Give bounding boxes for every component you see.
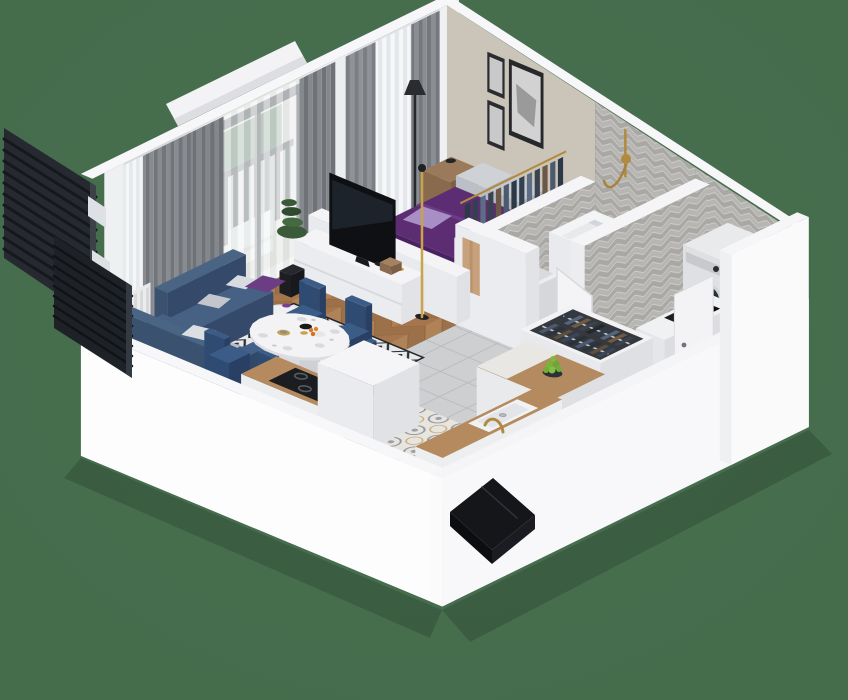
gold-lamp-head [418, 164, 426, 172]
coffee-table-vase [282, 304, 291, 308]
bedroom-sheer-folds-fold [407, 25, 411, 215]
bedroom-sheer-folds-fold [395, 31, 399, 221]
balcony-sheer-folds-fold [257, 97, 264, 288]
sink-drain [500, 414, 507, 417]
apple-5 [556, 366, 562, 372]
orange-2 [314, 327, 318, 331]
bedroom-sheer-folds-fold [399, 29, 403, 219]
entry-door-handle [682, 343, 687, 348]
washer-knob [713, 266, 719, 272]
exterior-shutter-lower-edge [126, 282, 132, 378]
orange-3 [311, 332, 315, 336]
entry-corner-wall-front-face [720, 250, 732, 465]
bedroom-sheer-folds-fold [386, 35, 390, 225]
floorplan-stage [0, 0, 848, 700]
apple-4 [543, 367, 549, 373]
balcony-sheer-folds-fold [283, 84, 289, 275]
apple-6 [550, 356, 556, 362]
art-small-top-canvas [490, 57, 503, 94]
balcony-sheer-folds-fold [264, 94, 271, 285]
bedroom-sheer-folds-fold [403, 27, 407, 217]
se-exterior-wall-front-face [431, 474, 443, 607]
balcony-sheer-folds-fold [251, 100, 258, 291]
apple-3 [549, 367, 556, 374]
art-small-bottom-canvas [490, 105, 503, 146]
shower-head [621, 154, 631, 164]
entry-corner-wall-right-face [731, 217, 808, 465]
orange-1 [309, 328, 313, 332]
apartment-3d-floorplan-render [0, 0, 848, 700]
balcony-sheer-folds-fold [277, 87, 284, 278]
bedroom-living-partition-right-face [457, 270, 471, 325]
balcony-sheer-folds-fold [270, 91, 277, 282]
bedroom-sheer-folds-fold [391, 33, 395, 223]
